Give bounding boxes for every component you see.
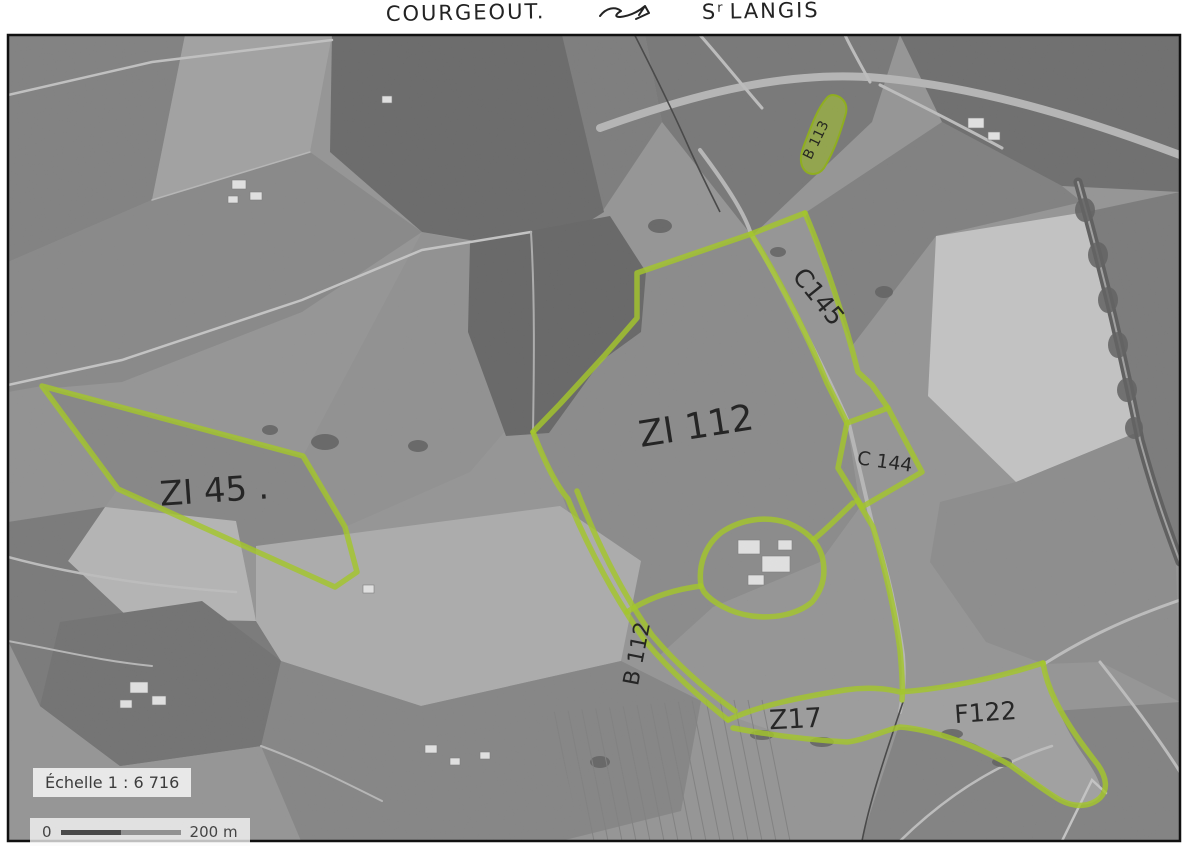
scale-ratio-label: Échelle 1 : 6 716: [45, 773, 179, 792]
parcel-label-z17: Z17: [768, 703, 822, 737]
scanned-map: COURGEOUT. SrLANGIS: [0, 0, 1200, 851]
commune-label-courgeout: COURGEOUT.: [386, 0, 546, 26]
st-langis-sup: r: [717, 1, 725, 16]
parcel-label-zi45: ZI 45 .: [158, 467, 270, 515]
scale-bar-start-label: 0: [42, 823, 52, 841]
double-arrow-sketch-icon: [600, 6, 649, 19]
commune-label-st-langis: SrLANGIS: [702, 0, 820, 24]
st-langis-rest: LANGIS: [729, 0, 819, 24]
scale-bar: [61, 830, 181, 835]
st-langis-prefix: S: [702, 0, 718, 24]
scale-ratio-box: Échelle 1 : 6 716: [33, 768, 191, 797]
scanned-cadastral-map-page: COURGEOUT. SrLANGIS: [0, 0, 1200, 851]
scale-bar-box: 0 200 m: [30, 818, 250, 846]
parcel-label-f122: F122: [953, 696, 1017, 729]
scale-bar-end-label: 200 m: [190, 823, 238, 841]
margin-annotations: COURGEOUT. SrLANGIS: [386, 0, 820, 26]
